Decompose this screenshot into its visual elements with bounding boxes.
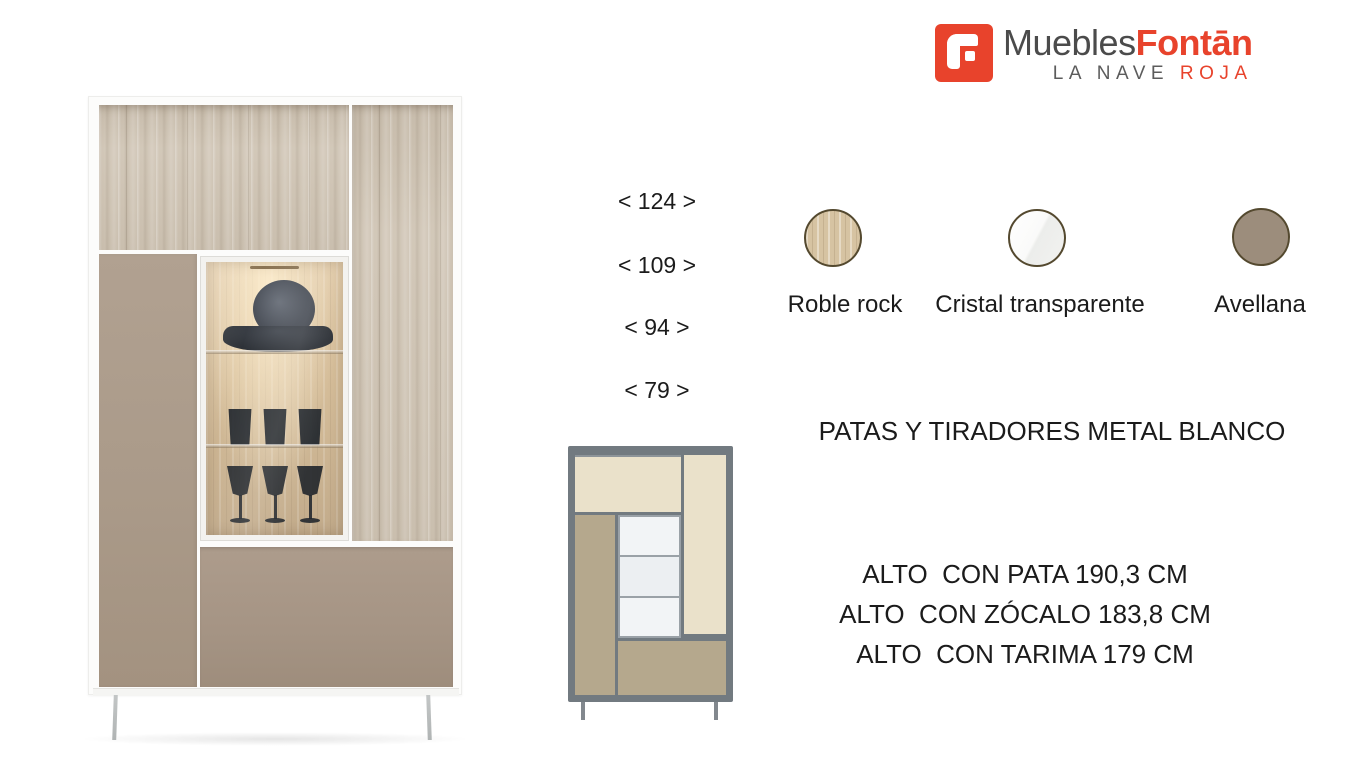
f-icon-stem [947, 34, 960, 69]
schematic-glass-door [618, 515, 681, 638]
glass-reflection [206, 262, 343, 535]
brand-text: MueblesFontān LA NAVE ROJA [1003, 24, 1253, 85]
floor-shadow [78, 732, 472, 746]
schematic-drawer-front [618, 641, 726, 695]
swatch-cristal-transparente [1008, 209, 1066, 267]
width-label-109: < 109 > [590, 251, 724, 279]
brand-tagline-primary: LA NAVE [1053, 63, 1180, 84]
height-spec-pata: ALTO CON PATA 190,3 CM [815, 554, 1235, 594]
schematic-frame [568, 446, 733, 702]
cabinet-drawer-front-hazel [200, 547, 453, 687]
width-label-94: < 94 > [590, 313, 724, 341]
swatch-roble-rock [804, 209, 862, 267]
cabinet-schematic [568, 446, 733, 726]
hardware-note: PATAS Y TIRADORES METAL BLANCO [802, 416, 1302, 446]
cabinet-white-frame [88, 96, 462, 695]
cabinet-right-panel-oak [352, 105, 453, 541]
brand-name-accent: Fontān [1136, 22, 1253, 63]
schematic-leg-right [714, 702, 718, 720]
height-spec-tarima: ALTO CON TARIMA 179 CM [815, 634, 1235, 674]
schematic-glass-section [620, 517, 679, 555]
cabinet-left-door-hazel [99, 254, 197, 687]
schematic-leg-left [581, 702, 585, 720]
schematic-right-panel [684, 455, 726, 634]
swatch-avellana [1232, 208, 1290, 266]
f-icon-dot [965, 51, 975, 61]
product-photo [88, 96, 462, 748]
schematic-top-door [575, 455, 681, 512]
brand-name-primary: Muebles [1003, 22, 1136, 63]
schematic-left-door [575, 515, 615, 695]
width-label-79: < 79 > [590, 376, 724, 404]
swatch-label-cristal-transparente: Cristal transparente [910, 291, 1170, 319]
cabinet-glass-vitrine [201, 257, 348, 540]
brand-tagline-accent: ROJA [1180, 63, 1253, 84]
width-label-124: < 124 > [590, 187, 724, 215]
cabinet-top-door-oak [99, 105, 349, 250]
brand-logo: MueblesFontān LA NAVE ROJA [935, 24, 1253, 85]
swatch-label-roble-rock: Roble rock [765, 291, 925, 319]
swatch-label-avellana: Avellana [1180, 291, 1340, 319]
schematic-glass-section [620, 598, 679, 636]
vitrine-lit-interior [206, 262, 343, 535]
brand-tagline: LA NAVE ROJA [1003, 63, 1253, 85]
schematic-glass-section [620, 557, 679, 595]
cabinet-base-strip [93, 688, 459, 696]
height-spec-zocalo: ALTO CON ZÓCALO 183,8 CM [815, 594, 1235, 634]
brand-name: MueblesFontān [1003, 24, 1253, 62]
fontan-f-icon [935, 24, 993, 82]
cabinet-metal-leg-right [426, 695, 432, 740]
height-specs: ALTO CON PATA 190,3 CM ALTO CON ZÓCALO 1… [815, 554, 1235, 674]
